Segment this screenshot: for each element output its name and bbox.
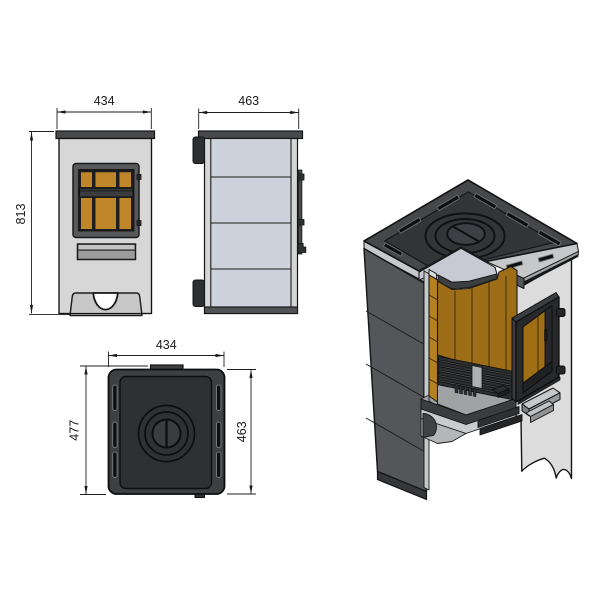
svg-text:813: 813 bbox=[14, 204, 28, 225]
svg-text:463: 463 bbox=[235, 421, 249, 442]
svg-text:434: 434 bbox=[156, 338, 177, 352]
svg-text:463: 463 bbox=[238, 94, 259, 108]
svg-text:477: 477 bbox=[68, 420, 82, 441]
svg-text:434: 434 bbox=[94, 94, 115, 108]
